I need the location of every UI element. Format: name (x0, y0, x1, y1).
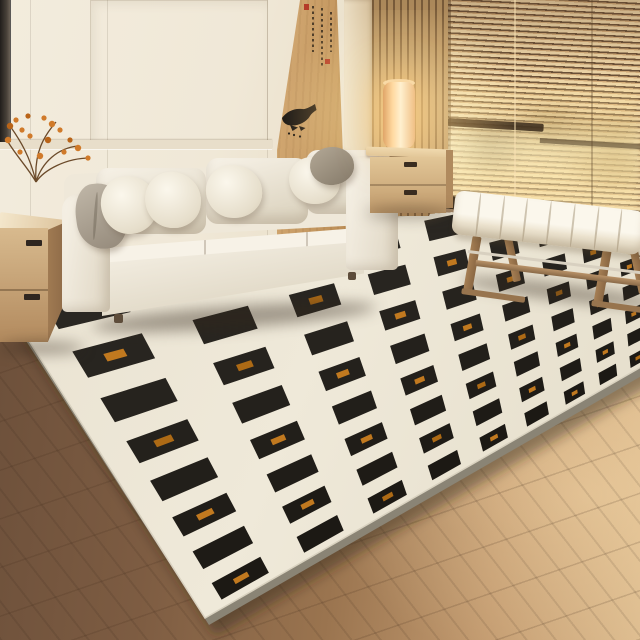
drawer-divider (0, 289, 48, 291)
sofa-leg (114, 314, 123, 323)
drawer-handle (404, 190, 417, 195)
seal-stamp (304, 4, 309, 10)
calligraphy-strokes (313, 6, 331, 66)
calligraphy-inscription (302, 2, 342, 68)
drawer-handle (404, 162, 417, 167)
seal-stamp (325, 59, 330, 64)
cabinet-shadow (0, 342, 84, 354)
bench-channel-seam (569, 203, 576, 247)
bench-channel-seam (522, 198, 529, 242)
bench-channel-seam (545, 201, 552, 245)
sofa-leg (348, 272, 356, 280)
nightstand-group (366, 76, 458, 218)
throw-fold (92, 192, 98, 240)
bench-channel-seam (498, 195, 505, 239)
sofa (52, 130, 402, 330)
drawer-divider (370, 184, 446, 186)
bench-channel-seam (475, 193, 482, 237)
bench-channel-seam (593, 206, 600, 250)
nightstand-side (446, 150, 453, 208)
drawer-handle (26, 240, 42, 246)
floor-lamp-shade (383, 82, 415, 148)
bench-group (456, 188, 640, 318)
bench-channel-seam (616, 209, 623, 253)
drawer-handle (24, 294, 40, 300)
nightstand-shadow (366, 208, 454, 218)
living-room-photo (0, 0, 640, 640)
